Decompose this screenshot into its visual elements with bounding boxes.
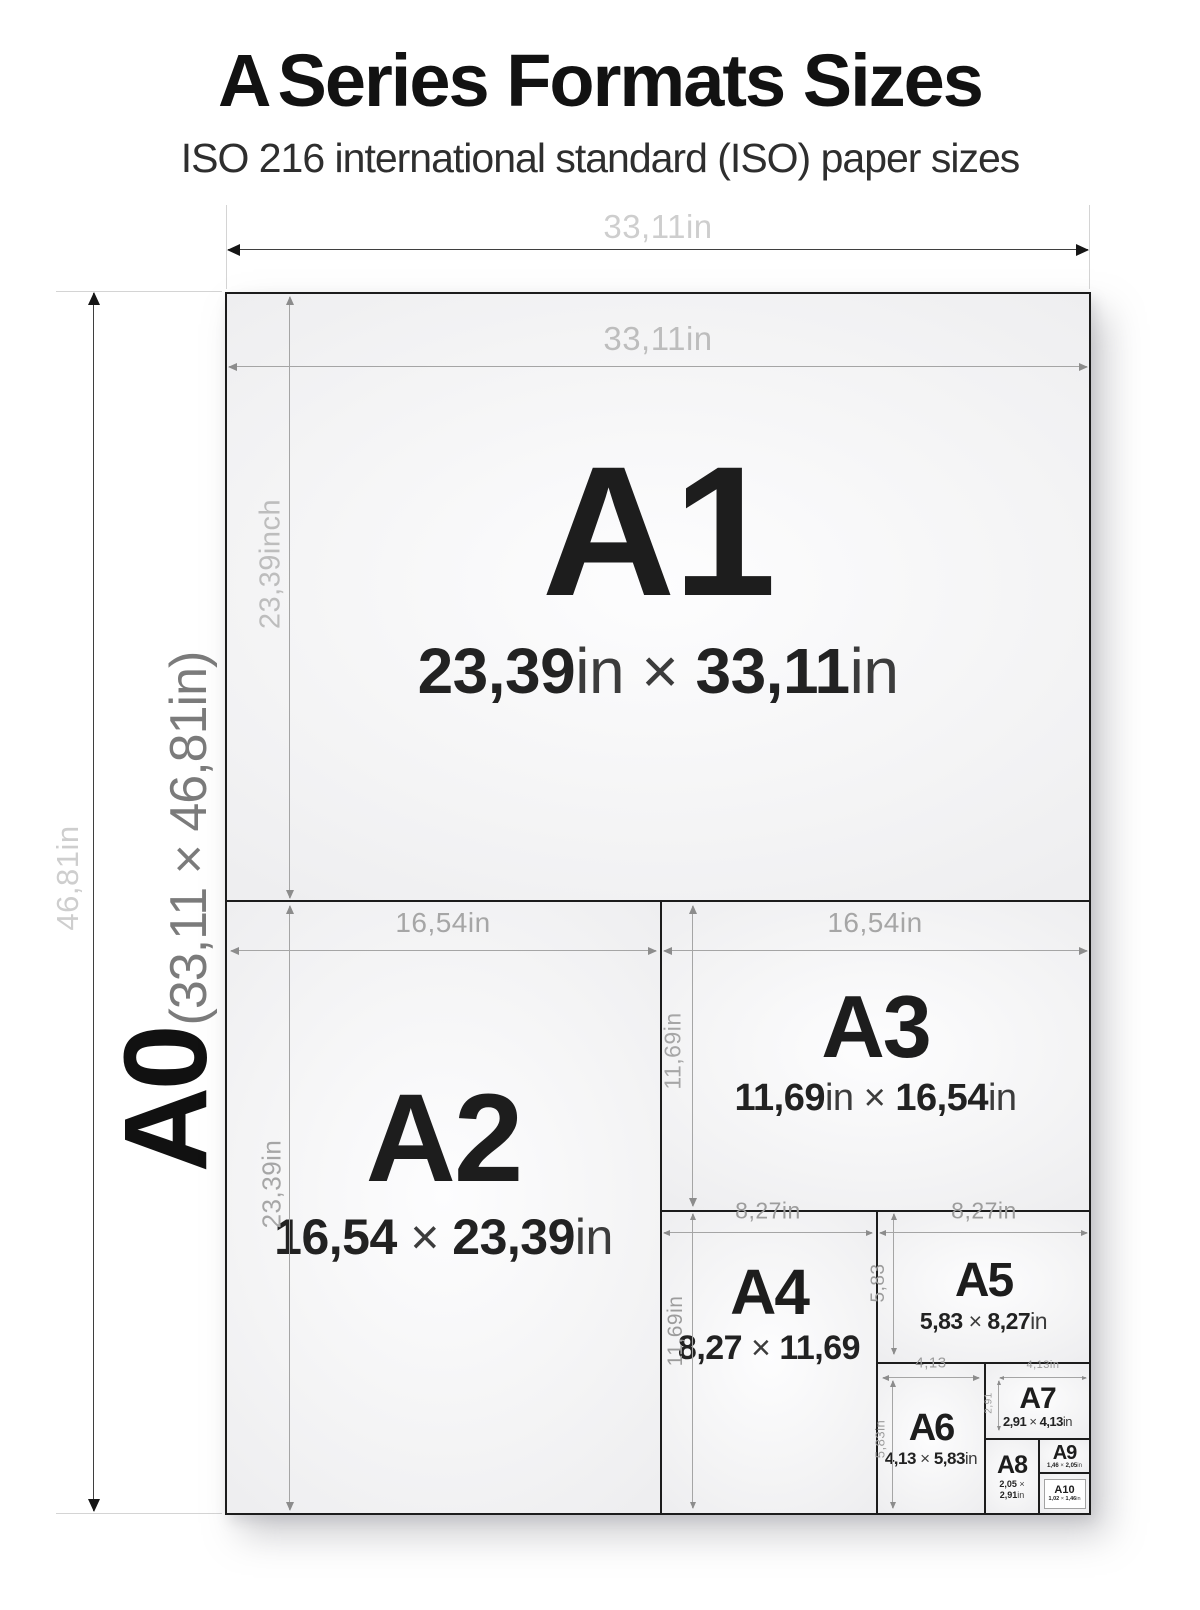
cell-a8-label: A8: [997, 1453, 1027, 1478]
cell-a2-label: A2: [366, 1076, 522, 1201]
extension-line: [56, 1513, 222, 1514]
dimension-line-a5-width: [880, 1232, 1087, 1233]
a0-paper-box: A1 23,39in × 33,11in A2 16,54 × 23,39in …: [225, 292, 1091, 1515]
dimension-label-a6-width: 4,13: [915, 1355, 946, 1372]
cell-a8-size: 2,05 × 2,91in: [986, 1479, 1038, 1500]
extension-line: [1089, 205, 1090, 289]
dimension-label-a1-width: 33,11in: [603, 320, 712, 358]
divider: [1038, 1438, 1040, 1513]
cell-a4-size: 8,27 × 11,69: [678, 1329, 860, 1368]
cell-a10: A10 1,02 × 1,46in: [1040, 1474, 1089, 1513]
dimension-line-a0-height: [93, 293, 94, 1511]
cell-a1-label: A1: [542, 440, 775, 625]
cell-a7-size: 2,91 × 4,13in: [1003, 1415, 1072, 1430]
dimension-line-a5-height: [893, 1214, 894, 1354]
cell-a8: A8 2,05 × 2,91in: [986, 1440, 1038, 1513]
cell-a2: A2 16,54 × 23,39in: [227, 902, 660, 1513]
dimension-line-a3-width: [664, 950, 1087, 951]
paper-sizes-infographic: ASeries Formats Sizes ISO 216 internatio…: [0, 0, 1200, 1610]
cell-a10-frame: A10 1,02 × 1,46in: [1044, 1479, 1086, 1509]
divider: [1038, 1472, 1089, 1474]
cell-a4: A4 8,27 × 11,69: [662, 1212, 876, 1513]
cell-a3: A3 11,69in × 16,54in: [662, 902, 1089, 1210]
cell-a9-label: A9: [1053, 1443, 1077, 1463]
dimension-label-a0-width: 33,11in: [603, 208, 712, 246]
dimension-label-a3-width: 16,54in: [827, 907, 922, 939]
divider: [660, 900, 662, 1513]
extension-line: [56, 291, 222, 292]
dimension-line-a2-height: [289, 906, 290, 1510]
cell-a5-label: A5: [955, 1257, 1012, 1305]
dimension-line-a7-width: [1000, 1377, 1086, 1378]
dimension-line-a7-height: [998, 1381, 999, 1430]
cell-a9: A9 1,46 × 2,05in: [1040, 1440, 1089, 1472]
cell-a9-size: 1,46 × 2,05in: [1047, 1463, 1082, 1470]
a0-name: A0: [107, 1027, 225, 1172]
dimension-label-a2-width: 16,54in: [395, 907, 490, 939]
cell-a1-size: 23,39in × 33,11in: [418, 635, 899, 709]
dimension-line-a6-height: [892, 1381, 893, 1508]
page-subtitle: ISO 216 international standard (ISO) pap…: [0, 136, 1200, 181]
dimension-label-a7-width: 4,13in: [1027, 1359, 1060, 1371]
cell-a10-size: 1,02 × 1,46in: [1049, 1496, 1081, 1502]
cell-a6-label: A6: [909, 1409, 954, 1447]
cell-a7-label: A7: [1019, 1384, 1055, 1414]
divider: [227, 900, 1089, 902]
cell-a2-size: 16,54 × 23,39in: [274, 1209, 613, 1267]
dimension-line-a0-width: [228, 249, 1088, 250]
title-prefix: A: [218, 39, 271, 122]
cell-a3-label: A3: [821, 983, 930, 1071]
dimension-line-a4-width: [664, 1232, 872, 1233]
cell-a6-size: 4,13 × 5,83in: [885, 1449, 977, 1469]
divider: [660, 1210, 1089, 1212]
dimension-label-a4-width: 8,27in: [735, 1198, 801, 1225]
cell-a4-label: A4: [730, 1260, 808, 1324]
dimension-label-a5-width: 8,27in: [951, 1198, 1017, 1225]
cell-a10-label: A10: [1054, 1485, 1074, 1496]
title-rest: Series Formats Sizes: [277, 39, 981, 122]
divider: [984, 1438, 1089, 1440]
cell-a3-size: 11,69in × 16,54in: [734, 1077, 1016, 1121]
a0-size: (33,11 × 46,81in): [159, 652, 219, 1026]
cell-a5: A5 5,83 × 8,27in: [878, 1212, 1089, 1362]
dimension-line-a2-width: [231, 950, 656, 951]
dimension-line-a4-height: [692, 1214, 693, 1508]
dimension-line-a1-height: [289, 297, 290, 898]
cell-a1: A1 23,39in × 33,11in: [227, 294, 1089, 900]
dimension-line-a1-width: [229, 366, 1087, 367]
dimension-line-a6-width: [883, 1377, 979, 1378]
cell-a5-size: 5,83 × 8,27in: [920, 1308, 1047, 1334]
dimension-line-a3-height: [692, 906, 693, 1206]
page-title: ASeries Formats Sizes: [0, 42, 1200, 120]
